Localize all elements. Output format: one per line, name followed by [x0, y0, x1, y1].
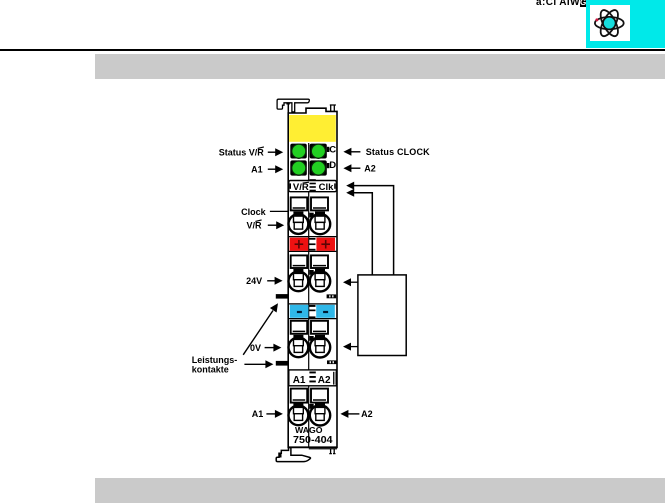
- svg-text:750-404: 750-404: [293, 435, 333, 446]
- svg-text:kontakte: kontakte: [192, 365, 229, 375]
- svg-text:A1: A1: [251, 164, 263, 174]
- svg-text:A1: A1: [293, 375, 306, 386]
- svg-text:Status V/R: Status V/R: [219, 147, 265, 157]
- svg-text:Status CLOCK: Status CLOCK: [366, 147, 430, 157]
- svg-text:A1: A1: [252, 409, 264, 419]
- svg-text:24V: 24V: [246, 276, 262, 286]
- svg-text:A2: A2: [318, 375, 331, 386]
- svg-text:V/R: V/R: [246, 221, 262, 231]
- svg-text:Clock: Clock: [241, 207, 267, 217]
- svg-text:Leistungs-: Leistungs-: [192, 355, 238, 365]
- svg-text:D: D: [329, 160, 336, 171]
- svg-text:0V: 0V: [250, 343, 261, 353]
- svg-text:C: C: [329, 145, 336, 156]
- svg-text:A2: A2: [364, 163, 376, 173]
- svg-text:V/R: V/R: [293, 182, 309, 193]
- svg-text:Clk: Clk: [319, 182, 335, 193]
- svg-text:A2: A2: [361, 409, 373, 419]
